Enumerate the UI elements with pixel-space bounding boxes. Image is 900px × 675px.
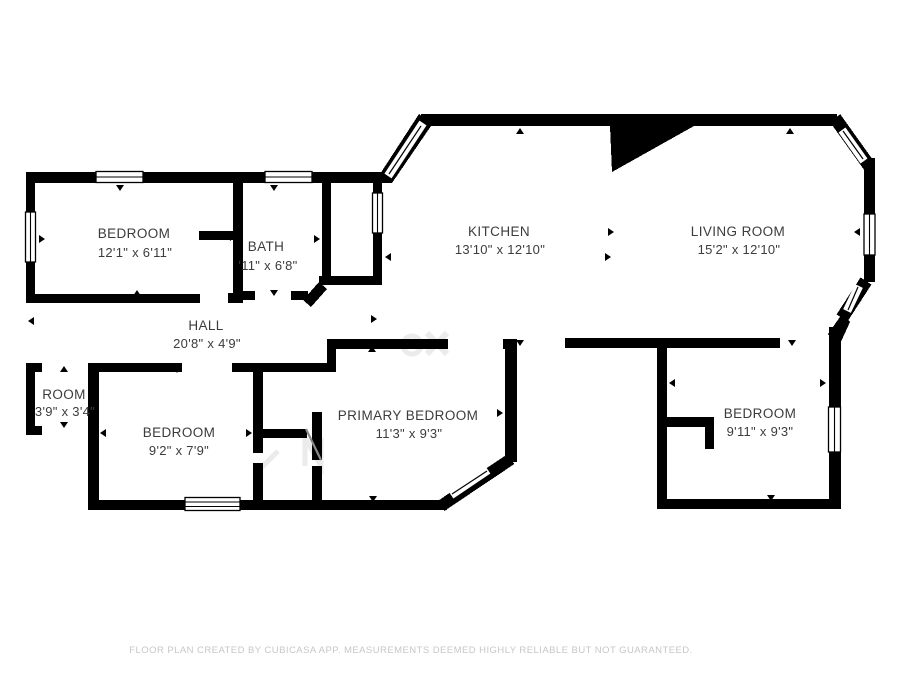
marker-icon (516, 340, 524, 346)
marker-icon (270, 290, 278, 296)
wall-bottom-row (88, 500, 447, 510)
room-label-hall: HALL (188, 318, 223, 333)
marker-icon (788, 340, 796, 346)
wall-bath-bottom-left (243, 291, 255, 300)
wall-kitchen-living-top (421, 114, 837, 126)
marker-icon (116, 185, 124, 191)
wall-room-bottom (26, 426, 42, 435)
room-dims-bedroom-bottom-right: 9'11" x 9'3" (727, 424, 794, 439)
room-dims-bath: '11" x 6'8" (238, 258, 297, 273)
window-closet-right (373, 193, 383, 233)
room-label-bath: BATH (248, 239, 285, 254)
wall-hall-bottom-a (88, 363, 182, 372)
room-label-bedroom-top-left: BEDROOM (98, 226, 171, 241)
room-dims-hall: 20'8" x 4'9" (173, 336, 241, 351)
wall-bath-right (322, 183, 331, 282)
room-label-primary-bedroom: PRIMARY BEDROOM (338, 408, 479, 423)
room-label-living-room: LIVING ROOM (691, 224, 785, 239)
wall-bay-lower (864, 255, 875, 282)
window-bay-bottom-diagonal (847, 286, 859, 311)
marker-icon (497, 409, 503, 417)
marker-icon (385, 253, 391, 261)
marker-icon (608, 228, 614, 236)
floor-plan-page: BEDROOM 12'1" x 6'11" BATH '11" x 6'8" K… (0, 0, 900, 675)
marker-icon (854, 228, 860, 236)
marker-icon (60, 422, 68, 428)
marker-icon (60, 366, 68, 372)
fireplace-triangle (610, 126, 694, 172)
wall-bedroom3-closet-v (705, 417, 714, 449)
wall-top-left-block-top (26, 172, 392, 183)
wall-kitchen-bottom (327, 339, 448, 349)
wall-primary-right (505, 339, 517, 462)
room-label-room: ROOM (42, 387, 86, 402)
window-bath-top (265, 172, 312, 183)
room-dims-kitchen: 13'10" x 12'10" (455, 242, 545, 257)
wall-closet-right-bottom (373, 233, 382, 283)
marker-icon (371, 315, 377, 323)
wall-strip-horizontal (262, 429, 307, 438)
window-bedroom1-left (26, 212, 36, 262)
marker-icon (786, 128, 794, 134)
window-bedroom2-bottom (185, 498, 240, 511)
marker-icon (605, 253, 611, 261)
marker-icon (133, 290, 141, 296)
footer-disclaimer: FLOOR PLAN CREATED BY CUBICASA APP. MEAS… (129, 645, 692, 656)
window-bay-center (864, 214, 875, 255)
marker-icon (100, 429, 106, 437)
window-kitchen-diagonal (388, 123, 423, 176)
wall-strip-vertical-lower (312, 466, 322, 510)
floor-plan-drawing: BEDROOM 12'1" x 6'11" BATH '11" x 6'8" K… (0, 0, 900, 675)
room-label-kitchen: KITCHEN (468, 224, 530, 239)
room-dims-bedroom-top-left: 12'1" x 6'11" (98, 245, 172, 260)
wall-bedroom2-right-upper (253, 372, 263, 453)
wall-bedroom2-left (88, 363, 99, 510)
room-dims-room: 3'9" x 3'4" (35, 404, 95, 419)
wall-living-bottom (565, 338, 780, 348)
wall-hall-bottom-b (232, 363, 336, 372)
marker-icon (39, 235, 45, 243)
window-bedroom1-top (96, 172, 143, 183)
wall-bedroom2-right-lower (253, 463, 263, 510)
room-dims-living-room: 15'2" x 12'10" (698, 242, 781, 257)
room-label-bedroom-bottom-right: BEDROOM (724, 406, 797, 421)
wall-bay-upper (864, 158, 875, 215)
marker-icon (516, 128, 524, 134)
wall-bedroom1-bottom-stub (228, 293, 243, 303)
wall-bedroom1-bottom (26, 294, 200, 303)
room-dims-primary-bedroom: 11'3" x 9'3" (376, 426, 443, 441)
room-dims-bedroom-bottom-left: 9'2" x 7'9" (149, 443, 209, 458)
marker-icon (820, 379, 826, 387)
wall-room-top (26, 363, 42, 372)
marker-icon (246, 429, 252, 437)
marker-icon (270, 185, 278, 191)
window-bedroom3-right (829, 407, 841, 452)
wall-bedroom3-bottom (657, 499, 841, 509)
wall-bedroom1-bath-divider (233, 183, 243, 294)
marker-icon (28, 317, 34, 325)
marker-icon (669, 379, 675, 387)
room-label-bedroom-bottom-left: BEDROOM (143, 425, 216, 440)
marker-icon (314, 235, 320, 243)
wall-hall-step (327, 348, 336, 372)
